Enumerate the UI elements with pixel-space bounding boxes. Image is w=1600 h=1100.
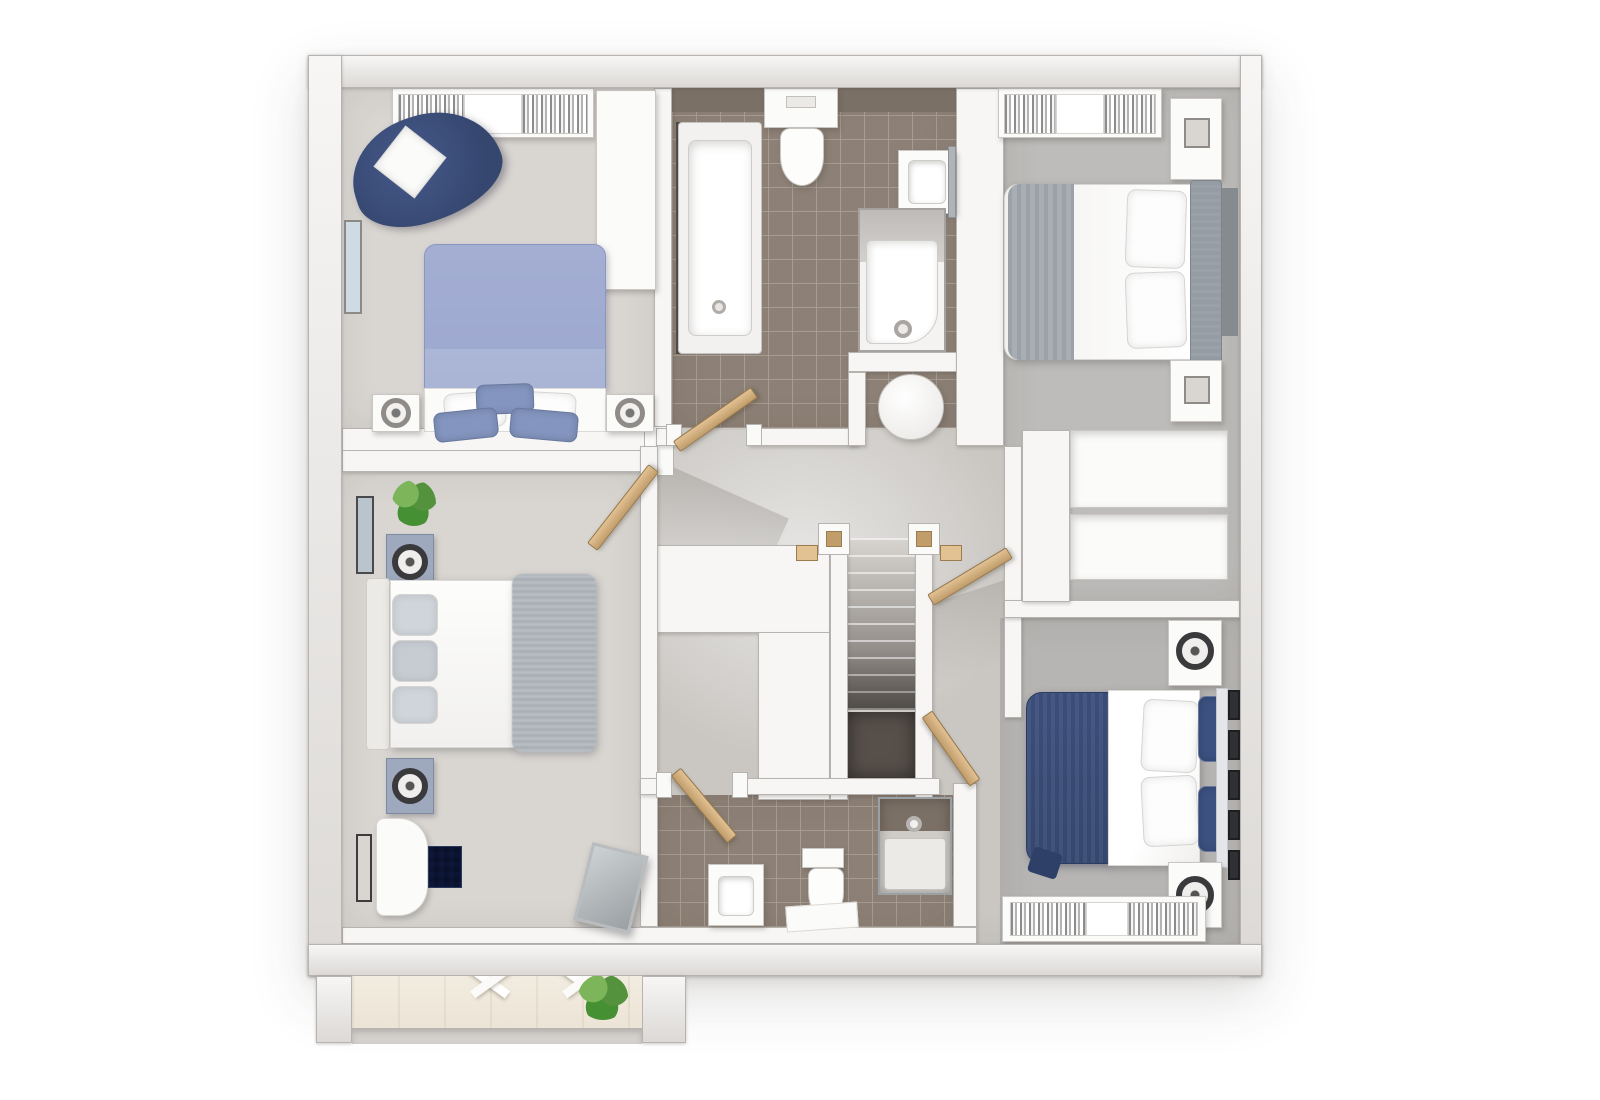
- ensuite-toilet-cistern: [802, 848, 844, 868]
- bathroom-basin-bowl: [908, 160, 946, 204]
- outer-wall-top: [308, 55, 1262, 88]
- master-pillow-3: [392, 686, 438, 724]
- bay-step-lip: [352, 1028, 642, 1044]
- toilet-flush-plate: [786, 96, 816, 108]
- outer-wall-right: [1240, 55, 1262, 976]
- master-bed-headboard: [366, 578, 390, 750]
- wall-ensuite-bedroom3: [953, 783, 977, 927]
- bedroom3-wardrobe-clothes-left: [1010, 902, 1086, 936]
- master-wall-art-bottom: [356, 834, 372, 902]
- wall-south-interior: [342, 927, 977, 944]
- bathroom-door-jamb-right: [746, 424, 762, 446]
- stair-newel-left: [818, 523, 850, 555]
- stair-newel-right: [908, 523, 940, 555]
- master-ottoman-navy: [428, 846, 462, 888]
- master-pillow-1: [392, 594, 438, 636]
- wall-cupboard-block: [1022, 430, 1070, 602]
- ensuite-door-jamb-left: [656, 772, 672, 798]
- stair-wall-left: [830, 535, 848, 800]
- bathtub-drain: [712, 300, 726, 314]
- floorplan-3d-render: [0, 0, 1600, 1100]
- bedroom2-nightstand-bottom-tray: [1184, 376, 1210, 404]
- bay-pillar-left: [316, 976, 352, 1043]
- bedroom1-lamp-right: [615, 398, 645, 428]
- bedroom3-wardrobe-clothes-right: [1128, 902, 1198, 936]
- bay-plant: [578, 976, 628, 1020]
- bedroom1-lamp-left: [381, 398, 411, 428]
- round-side-table: [878, 374, 944, 440]
- ensuite-shower-tray: [884, 838, 946, 890]
- shower-bath-head: [894, 320, 912, 338]
- bed1-pillow-blue-right: [509, 407, 579, 443]
- wall-bedroom2-bottom: [1004, 600, 1240, 618]
- outer-wall-left: [308, 55, 342, 976]
- bathroom-mirror: [948, 146, 956, 218]
- outer-wall-bottom: [308, 944, 1262, 976]
- staircase-bottom-shade: [848, 650, 915, 710]
- bed3-pillow-white-bottom: [1140, 775, 1200, 848]
- bed3-headboard: [1216, 688, 1228, 868]
- bedroom3-lamp-top: [1176, 632, 1214, 670]
- wall-bedroom1-master: [342, 428, 656, 472]
- wall-alcove-left: [848, 372, 866, 446]
- bedroom2-wardrobe-clothes-left: [1004, 94, 1056, 134]
- bed3-navy-duvet: [1026, 692, 1110, 864]
- wall-alcove-top: [848, 352, 962, 372]
- master-lamp-bottom: [392, 768, 428, 804]
- toilet-cistern: [764, 88, 838, 128]
- master-wall-art-top: [356, 496, 374, 574]
- bay-timber-floor: [352, 976, 642, 1028]
- handrail-end-left: [796, 545, 818, 561]
- master-lamp-top: [392, 544, 428, 580]
- bedroom1-wardrobe-clothes-right: [522, 94, 588, 134]
- wall-bedroom1-bathroom: [654, 88, 672, 428]
- master-chaise: [376, 818, 428, 916]
- bed3-pillow-white-top: [1140, 699, 1200, 774]
- under-stair-void: [848, 712, 915, 778]
- master-bed-fluffy-throw: [512, 574, 596, 752]
- bed2-pillow-top: [1125, 189, 1188, 269]
- ensuite-basin-bowl: [718, 876, 754, 916]
- gallery-frame-5: [1228, 850, 1240, 880]
- bed2-headboard: [1190, 180, 1222, 364]
- bay-pillar-right: [642, 976, 686, 1043]
- bedroom3-wardrobe-shelf: [1086, 902, 1128, 936]
- master-pillow-2: [392, 640, 438, 682]
- bedroom2-nightstand-top-tray: [1184, 118, 1210, 148]
- wall-ensuite-top-right: [736, 778, 940, 795]
- bed1-duvet: [424, 244, 606, 390]
- bed2-gray-throw: [1008, 184, 1074, 360]
- built-in-cupboard-upper: [1070, 430, 1228, 508]
- bed2-wall-panel: [1222, 188, 1238, 336]
- gallery-frame-4: [1228, 810, 1240, 840]
- built-in-cupboard-lower: [1070, 514, 1228, 580]
- bulkhead-l-vertical: [758, 632, 830, 800]
- gallery-frame-2: [1228, 730, 1240, 760]
- wall-bathroom-bottom-right: [748, 428, 858, 446]
- bedroom2-wardrobe-clothes-right: [1104, 94, 1156, 134]
- ensuite-door-jamb-right: [732, 772, 748, 798]
- roof-beam-2: [470, 976, 564, 998]
- wall-landing-bedroom3-upper: [1004, 446, 1022, 718]
- gallery-frame-3: [1228, 770, 1240, 800]
- ensuite-bath-mat: [785, 902, 859, 933]
- wall-bathroom-bedroom2: [956, 88, 1004, 446]
- bedroom2-wardrobe-shelf: [1056, 94, 1104, 134]
- toilet-bowl: [780, 128, 824, 186]
- bed2-pillow-bottom: [1125, 271, 1188, 349]
- bedroom1-wall-art: [344, 220, 362, 314]
- ensuite-shower-head: [906, 816, 922, 832]
- gallery-frame-1: [1228, 690, 1240, 720]
- master-plant: [392, 480, 436, 526]
- stair-wall-right: [915, 535, 933, 800]
- handrail-end-right: [940, 545, 962, 561]
